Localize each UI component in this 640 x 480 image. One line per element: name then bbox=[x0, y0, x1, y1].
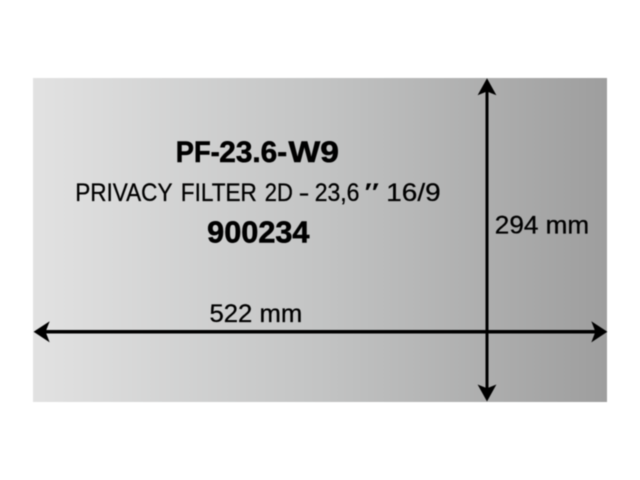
svg-text:′′: ′′ bbox=[364, 179, 379, 207]
svg-text:16/9: 16/9 bbox=[386, 179, 440, 207]
svg-text:PRIVACY: PRIVACY bbox=[75, 179, 172, 207]
svg-text:FILTER: FILTER bbox=[181, 179, 257, 207]
svg-text:23.6-: 23.6- bbox=[219, 136, 287, 169]
svg-text:PF-: PF- bbox=[176, 136, 220, 169]
svg-text:522 mm: 522 mm bbox=[210, 300, 303, 328]
svg-text:2D: 2D bbox=[265, 179, 293, 207]
svg-text:-: - bbox=[299, 179, 310, 207]
svg-text:900234: 900234 bbox=[207, 216, 310, 249]
svg-text:23,6: 23,6 bbox=[315, 179, 360, 207]
svg-text:W9: W9 bbox=[289, 136, 339, 169]
svg-text:294 mm: 294 mm bbox=[495, 212, 589, 240]
